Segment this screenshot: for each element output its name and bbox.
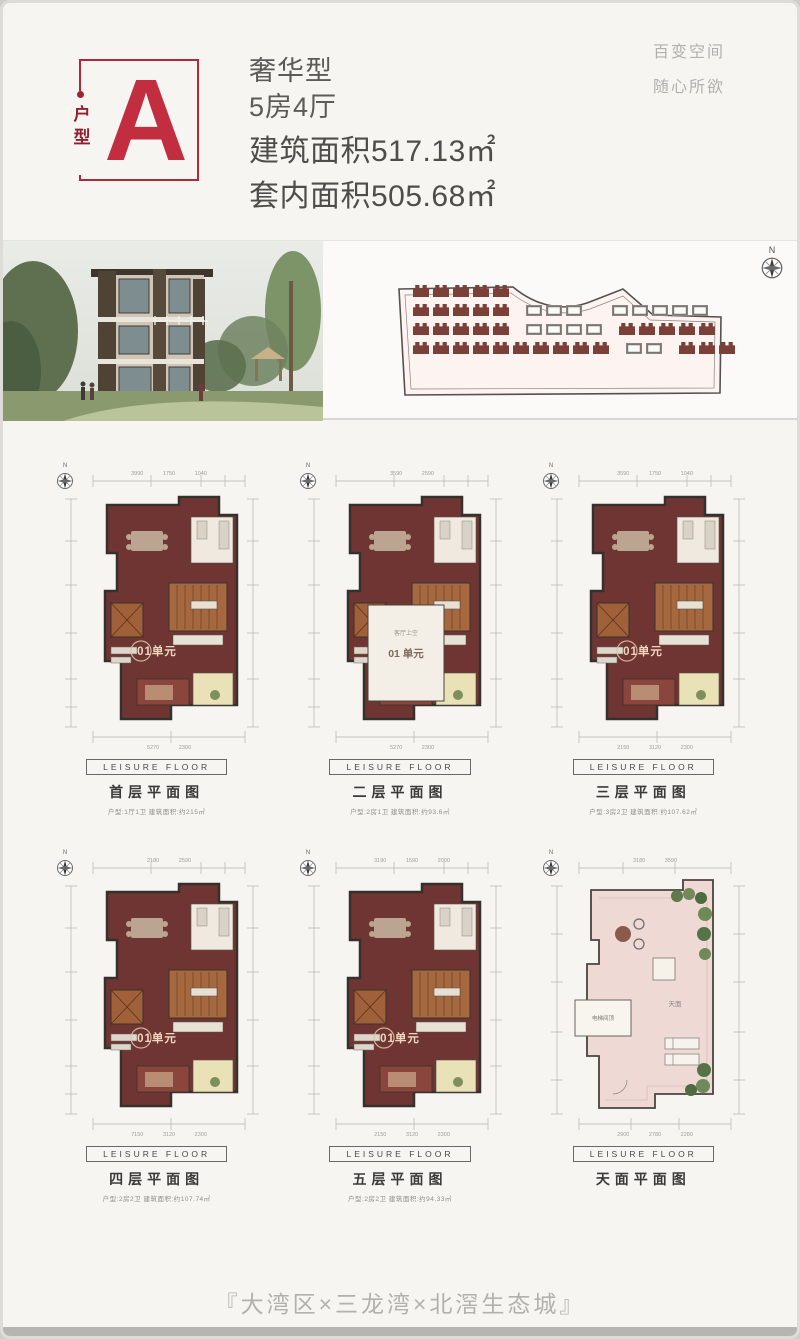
house-outline-icon	[546, 305, 562, 316]
floor-plan-roof-drawing: 电梯间顶 天面 N 3180 3590 2900 2780 2280	[527, 842, 759, 1142]
house-filled-icon	[413, 342, 429, 354]
unit-type-label: 户型	[68, 105, 93, 151]
house-outline-icon	[626, 343, 642, 354]
floor-plan-3-drawing: N 3590 1750 1040 2150 3120 2300 01单元	[527, 455, 759, 755]
house-filled-icon	[473, 285, 489, 297]
house-row	[413, 323, 743, 335]
roof-label: 天面	[669, 1000, 683, 1008]
elevator-top-label: 电梯间顶	[592, 1014, 615, 1022]
plan-title: 三层平面图	[573, 782, 714, 802]
leisure-floor-tag: LEISURE FLOOR	[573, 1146, 714, 1162]
bottom-dimensions: 2150 3120 2300	[617, 745, 693, 751]
top-dimensions: 2180 2590	[147, 858, 191, 864]
plan-caption: LEISURE FLOOR 三层平面图 户型:3房2卫 建筑面积:约107.62…	[573, 757, 714, 816]
leisure-floor-tag: LEISURE FLOOR	[329, 759, 470, 775]
compass-n-label: N	[306, 463, 310, 469]
house-filled-icon	[719, 342, 735, 354]
compass-n-label: N	[62, 463, 66, 469]
house-outline-icon	[646, 343, 662, 354]
site-plan-compass: N	[755, 245, 789, 286]
compass-n-label: N	[549, 463, 553, 469]
plan-caption: LEISURE FLOOR 二层平面图 户型:2房1卫 建筑面积:约93.6㎡	[329, 757, 470, 816]
bottom-dimensions: 7150 3120 2300	[131, 1132, 207, 1138]
plan-info	[573, 1193, 714, 1201]
unit-type-letter: A	[79, 59, 199, 181]
spec-build-area: 建筑面积517.13㎡	[249, 132, 496, 171]
plan-info: 户型:2房1卫 建筑面积:约93.6㎡	[329, 806, 470, 816]
floor-plan-3: N 3590 1750 1040 2150 3120 2300 01单元 LEI…	[526, 455, 761, 816]
house-filled-icon	[473, 304, 489, 316]
floor-plan-5-drawing: N 3190 1590 2000 2150 3120 2300 01单元	[284, 842, 516, 1142]
house-outline-icon	[612, 305, 628, 316]
house-outline-icon	[586, 324, 602, 335]
house-filled-icon	[413, 323, 429, 335]
house-filled-icon	[513, 342, 529, 354]
plan-caption: LEISURE FLOOR 五层平面图 户型:2房2卫 建筑面积:约94.33㎡	[329, 1144, 470, 1203]
floor-plan-5: N 3190 1590 2000 2150 3120 2300 01单元 LEI…	[282, 842, 517, 1203]
top-dimensions: 3590 1750 1040	[617, 471, 693, 477]
media-band: N	[3, 240, 797, 420]
spec-inner-area: 套内面积505.68㎡	[249, 177, 496, 216]
house-filled-icon	[433, 342, 449, 354]
unit-label: 01单元	[380, 1031, 420, 1045]
floor-plan-1: N 3990 1750 1040 5270 2300 01单元 LEISURE …	[39, 455, 274, 816]
house-filled-icon	[433, 285, 449, 297]
site-plan-houses	[413, 285, 743, 354]
house-filled-icon	[619, 323, 635, 335]
house-outline-icon	[546, 324, 562, 335]
unit-type-badge: A 户型	[79, 59, 199, 181]
house-filled-icon	[699, 323, 715, 335]
top-dimensions: 3180 3590	[633, 858, 677, 864]
plan-title: 四层平面图	[86, 1169, 227, 1189]
floor-plan-2: 客厅上空 01 单元 N 3590 2590 5270 2300 LEISURE…	[282, 455, 517, 816]
house-filled-icon	[453, 323, 469, 335]
house-filled-icon	[453, 304, 469, 316]
plan-info: 户型:1厅1卫 建筑面积:约215㎡	[86, 806, 227, 816]
compass-icon	[759, 255, 785, 281]
house-filled-icon	[699, 342, 715, 354]
plan-title: 二层平面图	[329, 782, 470, 802]
bottom-dimensions: 5270 2300	[390, 745, 434, 751]
top-dimensions: 3990 1750 1040	[131, 471, 207, 477]
house-filled-icon	[679, 342, 695, 354]
plan-title: 首层平面图	[86, 782, 227, 802]
north-label: N	[755, 245, 789, 255]
house-row	[413, 285, 743, 297]
plan-info: 户型:2房2卫 建筑面积:约107.74㎡	[86, 1193, 227, 1203]
house-filled-icon	[453, 342, 469, 354]
house-filled-icon	[413, 304, 429, 316]
house-outline-icon	[652, 305, 668, 316]
house-filled-icon	[679, 323, 695, 335]
unit-label: 01单元	[623, 644, 663, 658]
top-dimensions: 3190 1590 2000	[374, 858, 450, 864]
site-plan: N	[385, 245, 797, 417]
floor-plan-4: N 2180 2590 7150 3120 2300 01单元 LEISURE …	[39, 842, 274, 1203]
unit-label: 01 单元	[388, 647, 424, 660]
house-outline-icon	[692, 305, 708, 316]
house-row	[413, 342, 743, 354]
house-outline-icon	[526, 324, 542, 335]
villa-photo-illustration	[3, 241, 323, 421]
slogan-line-2: 随心所欲	[653, 70, 725, 105]
void-label: 客厅上空	[394, 629, 418, 637]
house-filled-icon	[553, 342, 569, 354]
house-filled-icon	[433, 304, 449, 316]
villa-photo	[3, 241, 323, 421]
flyer-page: A 户型 奢华型 5房4厅 建筑面积517.13㎡ 套内面积505.68㎡ 百变…	[0, 0, 800, 1339]
plan-info: 户型:2房2卫 建筑面积:约94.33㎡	[329, 1193, 470, 1203]
plan-caption: LEISURE FLOOR 四层平面图 户型:2房2卫 建筑面积:约107.74…	[86, 1144, 227, 1203]
unit-label: 01单元	[137, 644, 177, 658]
plan-info: 户型:3房2卫 建筑面积:约107.62㎡	[573, 806, 714, 816]
badge-side: 户型	[71, 91, 89, 175]
header: A 户型 奢华型 5房4厅 建筑面积517.13㎡ 套内面积505.68㎡ 百变…	[3, 31, 797, 231]
house-filled-icon	[493, 285, 509, 297]
bottom-dimensions: 5270 2300	[147, 745, 191, 751]
top-dimensions: 3590 2590	[390, 471, 434, 477]
house-outline-icon	[566, 324, 582, 335]
leisure-floor-tag: LEISURE FLOOR	[86, 1146, 227, 1162]
floor-plans-grid: N 3990 1750 1040 5270 2300 01单元 LEISURE …	[3, 455, 797, 1203]
house-filled-icon	[473, 342, 489, 354]
house-filled-icon	[413, 285, 429, 297]
floor-plan-1-drawing: N 3990 1750 1040 5270 2300 01单元	[41, 455, 273, 755]
plan-caption: LEISURE FLOOR 首层平面图 户型:1厅1卫 建筑面积:约215㎡	[86, 757, 227, 816]
compass-n-label: N	[62, 850, 66, 856]
floor-plan-4-drawing: N 2180 2590 7150 3120 2300 01单元	[41, 842, 273, 1142]
house-outline-icon	[526, 305, 542, 316]
house-filled-icon	[453, 285, 469, 297]
house-row	[413, 304, 743, 316]
house-filled-icon	[573, 342, 589, 354]
footer-tagline: 『大湾区×三龙湾×北滘生态城』	[3, 1285, 797, 1319]
house-filled-icon	[433, 323, 449, 335]
slogan-line-1: 百变空间	[653, 35, 725, 70]
house-filled-icon	[493, 342, 509, 354]
plan-title: 五层平面图	[329, 1169, 470, 1189]
house-outline-icon	[566, 305, 582, 316]
bottom-dimensions: 2900 2780 2280	[617, 1132, 693, 1138]
leisure-floor-tag: LEISURE FLOOR	[86, 759, 227, 775]
house-outline-icon	[672, 305, 688, 316]
unit-label: 01单元	[137, 1031, 177, 1045]
house-filled-icon	[493, 304, 509, 316]
house-filled-icon	[493, 323, 509, 335]
slogan: 百变空间 随心所欲	[653, 35, 725, 105]
leisure-floor-tag: LEISURE FLOOR	[573, 759, 714, 775]
bottom-dimensions: 2150 3120 2300	[374, 1132, 450, 1138]
unit-specs: 奢华型 5房4厅 建筑面积517.13㎡ 套内面积505.68㎡	[249, 53, 496, 216]
compass-n-label: N	[549, 850, 553, 856]
compass-n-label: N	[306, 850, 310, 856]
badge-dot-icon	[77, 91, 84, 98]
house-filled-icon	[533, 342, 549, 354]
floor-plan-roof: 电梯间顶 天面 N 3180 3590 2900 2780 2280 LEISU…	[526, 842, 761, 1203]
house-filled-icon	[659, 323, 675, 335]
house-outline-icon	[632, 305, 648, 316]
house-filled-icon	[473, 323, 489, 335]
spec-rooms: 5房4厅	[249, 89, 496, 125]
house-filled-icon	[593, 342, 609, 354]
page-bottom-strip	[3, 1327, 797, 1336]
floor-plan-2-drawing: 客厅上空 01 单元 N 3590 2590 5270 2300	[284, 455, 516, 755]
house-filled-icon	[639, 323, 655, 335]
spec-type: 奢华型	[249, 53, 496, 89]
plan-title: 天面平面图	[573, 1169, 714, 1189]
plan-caption: LEISURE FLOOR 天面平面图	[573, 1144, 714, 1201]
leisure-floor-tag: LEISURE FLOOR	[329, 1146, 470, 1162]
